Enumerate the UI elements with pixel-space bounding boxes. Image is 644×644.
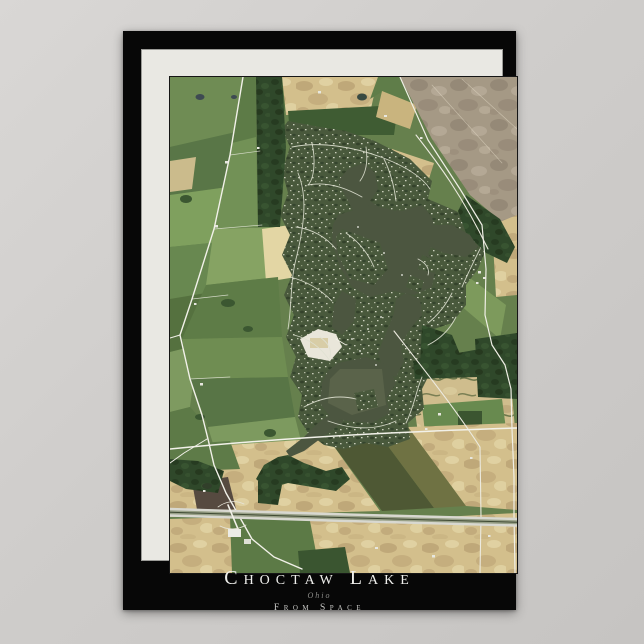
poster-title: Choctaw Lake: [123, 561, 516, 590]
poster: Choctaw Lake Ohio From Space: [123, 31, 516, 610]
page-background: { "poster": { "title": "Choctaw Lake", "…: [0, 0, 644, 644]
poster-caption: Choctaw Lake Ohio From Space: [123, 561, 516, 614]
satellite-photo: [169, 76, 518, 574]
photo-mat: [141, 49, 503, 561]
poster-tagline: From Space: [123, 602, 516, 614]
satellite-map: [170, 77, 517, 573]
poster-subtitle: Ohio: [123, 591, 516, 600]
